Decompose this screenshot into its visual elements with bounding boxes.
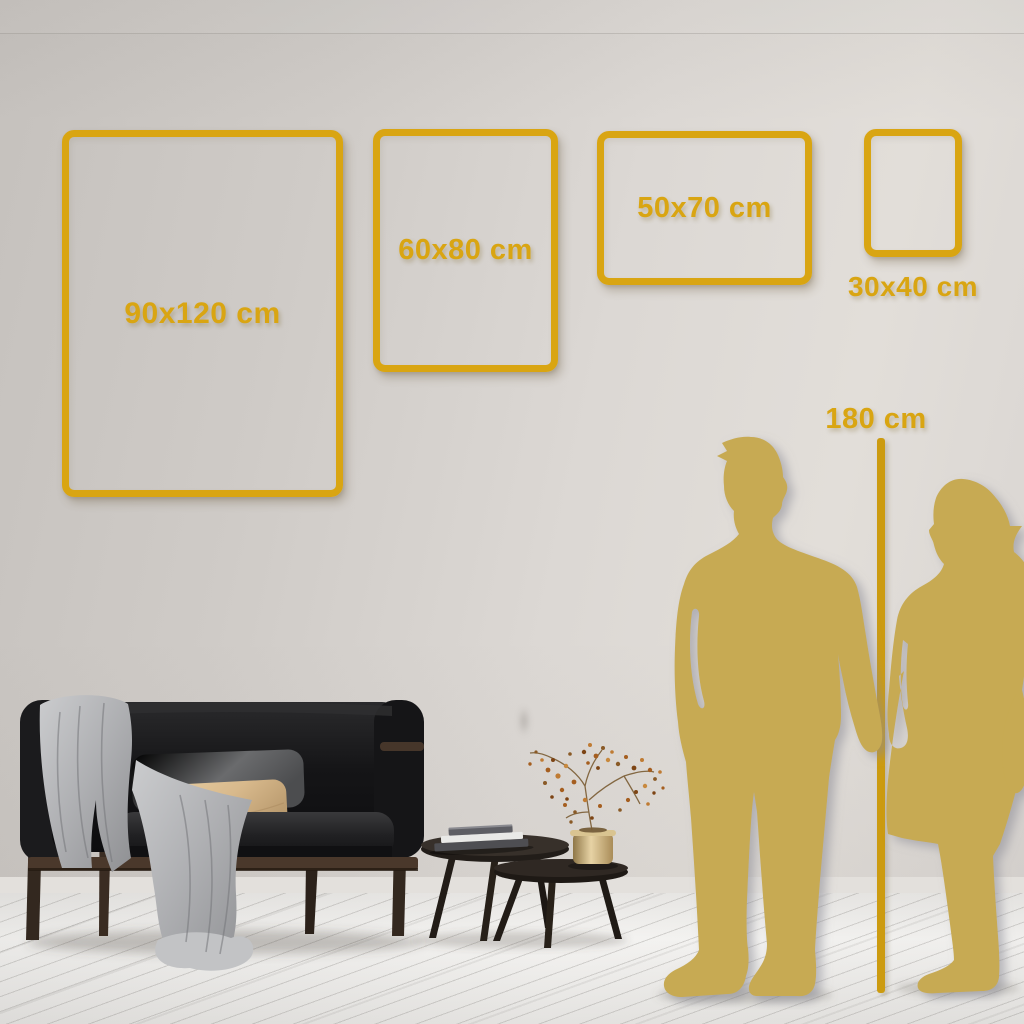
frame-50x70: 50x70 cm [597, 131, 812, 285]
frame-90x120: 90x120 cm [62, 130, 343, 497]
couple-silhouette [630, 425, 1024, 1010]
size-label-30x40: 30x40 cm [838, 271, 988, 303]
brass-vase [568, 827, 618, 870]
man-silhouette [664, 437, 882, 997]
frame-30x40 [864, 129, 962, 257]
ceiling-glow [0, 0, 1024, 33]
ceiling-line [0, 33, 1024, 34]
size-label-50x70: 50x70 cm [637, 192, 772, 225]
frame-60x80: 60x80 cm [373, 129, 558, 372]
size-guide-scene: 90x120 cm 60x80 cm 50x70 cm 30x40 cm [0, 0, 1024, 1024]
coffee-tables-illustration [410, 735, 665, 955]
wall-smudge-shadow [518, 706, 530, 736]
tables-floor-shadow [412, 932, 628, 948]
size-label-90x120: 90x120 cm [124, 297, 280, 331]
size-label-60x80: 60x80 cm [398, 234, 533, 267]
sofa-illustration [10, 688, 442, 1018]
